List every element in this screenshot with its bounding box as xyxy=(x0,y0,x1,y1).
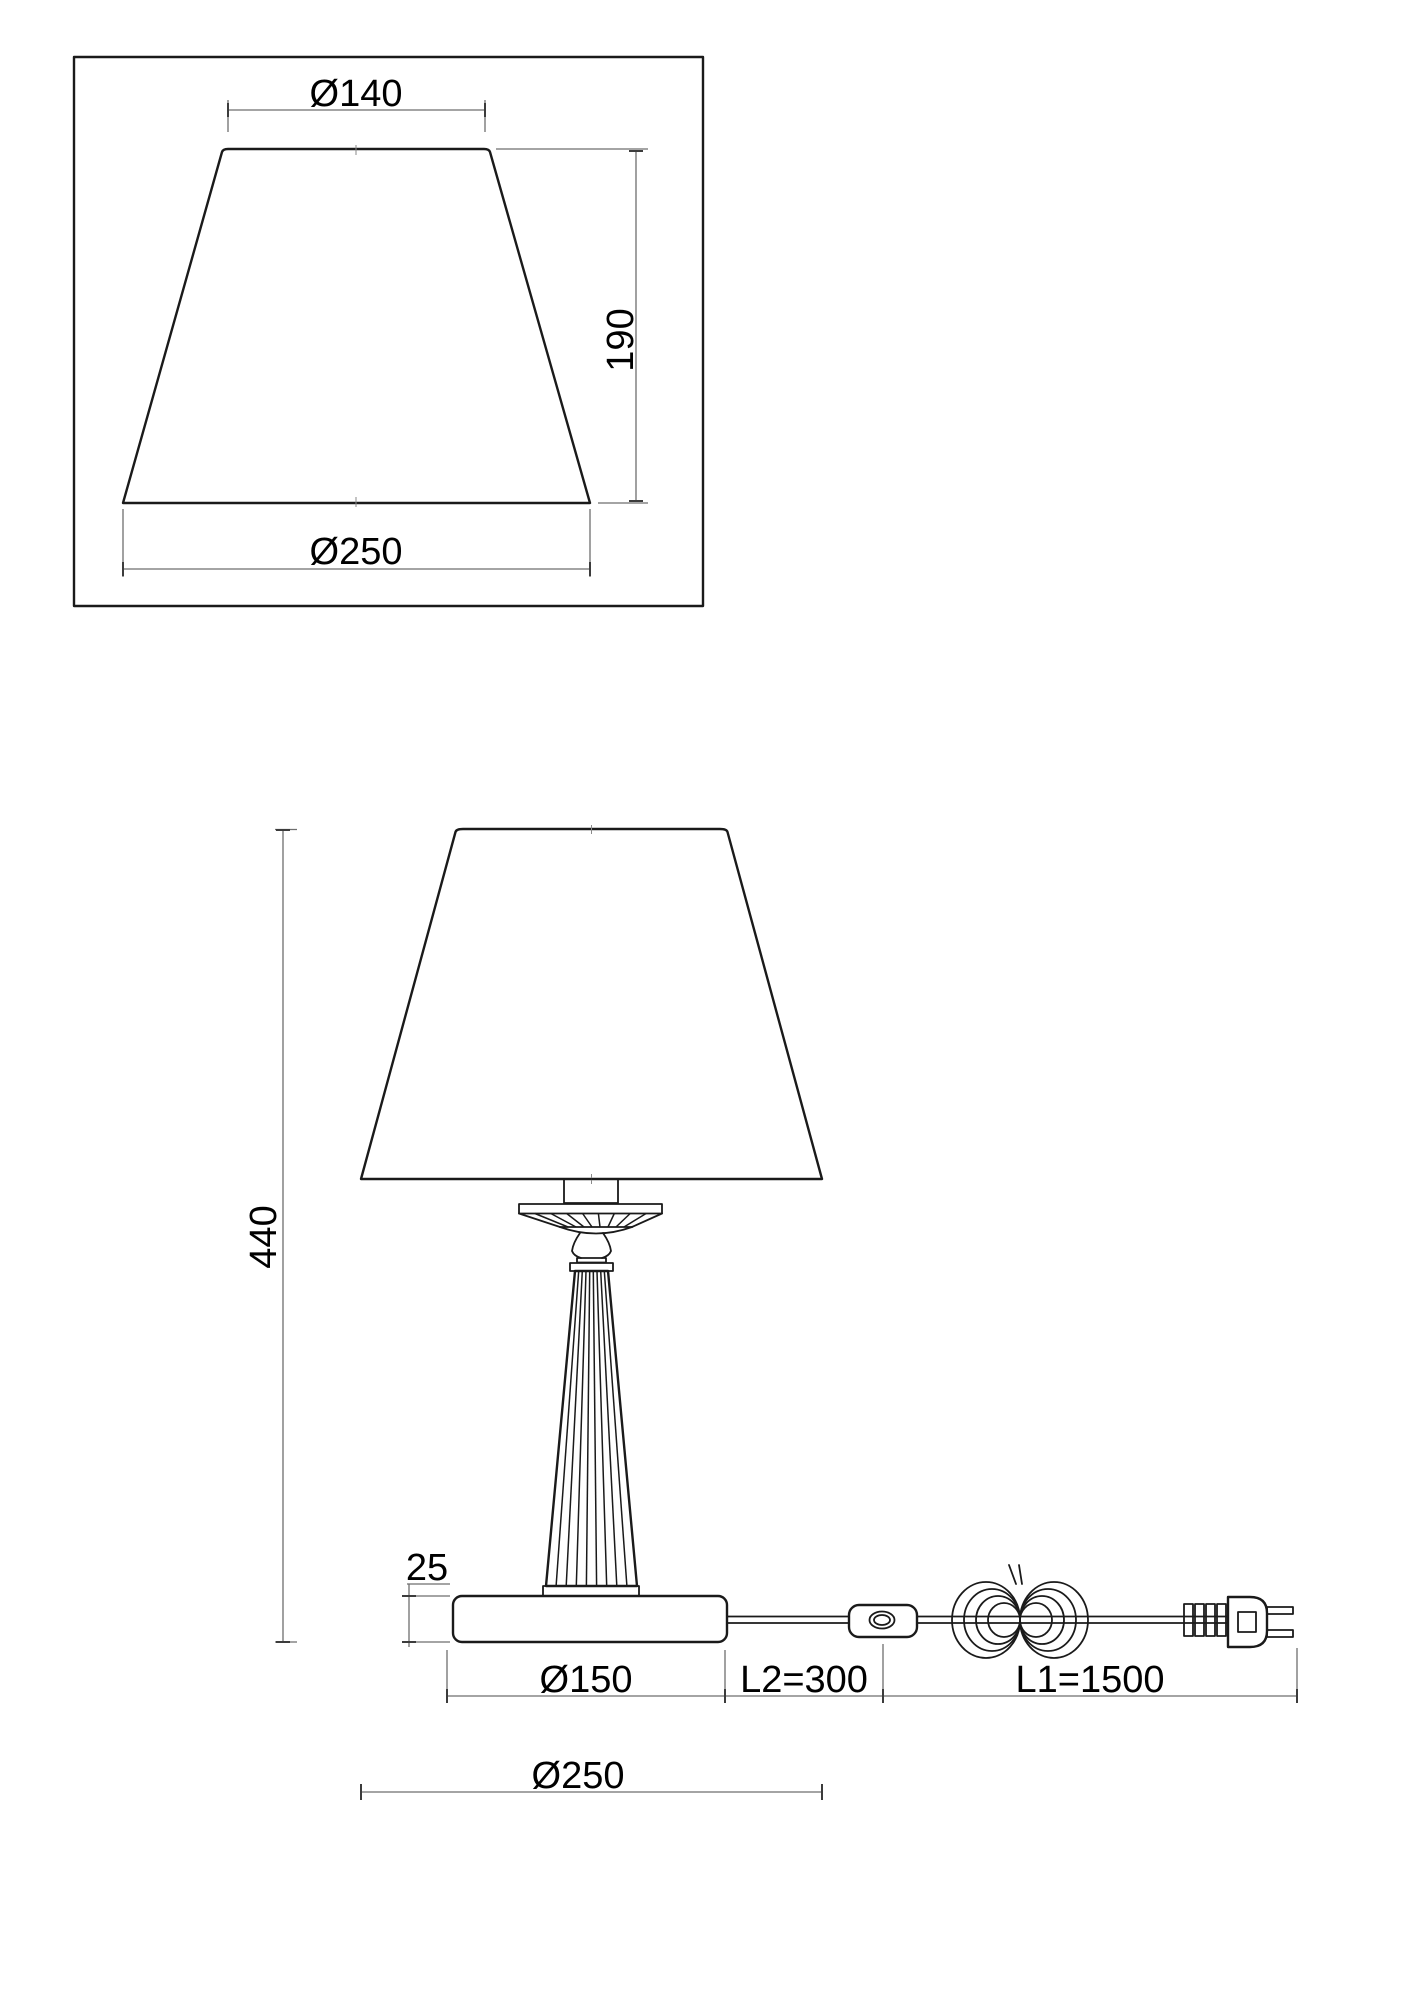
dimension-base-height: 25 xyxy=(402,1547,450,1647)
dimension-base-and-cord: Ø150 L2=300 L1=1500 xyxy=(447,1644,1297,1703)
lamp-front-view xyxy=(361,825,1293,1658)
technical-drawing-page: Ø140 190 Ø250 xyxy=(0,0,1413,2000)
total-height-label: 440 xyxy=(243,1205,285,1268)
base-diameter-label: Ø150 xyxy=(540,1659,633,1701)
dimension-bottom-diameter: Ø250 xyxy=(123,509,590,577)
front-view-dimensions: 440 25 Ø150 L2=300 L1=1500 xyxy=(243,830,1297,1801)
shade-height-label: 190 xyxy=(600,308,642,371)
base-height-label: 25 xyxy=(406,1547,448,1589)
cord-switch xyxy=(849,1605,917,1637)
plug-prong-top xyxy=(1267,1607,1293,1614)
lamp-dimension-drawing: Ø140 190 Ø250 xyxy=(0,0,1413,2000)
lamp-column xyxy=(543,1271,639,1596)
lamp-base xyxy=(453,1596,727,1642)
switch-cord-label: L2=300 xyxy=(740,1659,868,1701)
bottom-diameter-label: Ø250 xyxy=(310,531,403,573)
lamp-flange xyxy=(519,1204,662,1234)
plug-hole xyxy=(1238,1612,1256,1632)
power-cord xyxy=(727,1617,1228,1624)
plug-body xyxy=(1228,1597,1267,1647)
lamp-neck xyxy=(570,1233,613,1271)
coil-tie xyxy=(1009,1565,1016,1584)
column-collar xyxy=(543,1586,639,1596)
plug-prong-bottom xyxy=(1267,1630,1293,1637)
shade-detail-outline xyxy=(123,149,590,503)
dimension-shade-diameter: Ø250 xyxy=(361,1755,822,1800)
power-plug xyxy=(1184,1597,1293,1647)
plug-strain-relief xyxy=(1184,1604,1193,1636)
shade-diameter-label: Ø250 xyxy=(532,1755,625,1797)
top-diameter-label: Ø140 xyxy=(310,73,403,115)
shade-detail-view: Ø140 190 Ø250 xyxy=(74,57,703,606)
cord-coil xyxy=(952,1565,1088,1658)
plug-cord-label: L1=1500 xyxy=(1016,1659,1165,1701)
dimension-shade-height: 190 xyxy=(496,149,648,503)
lamp-shade xyxy=(361,829,822,1179)
dimension-top-diameter: Ø140 xyxy=(228,73,485,132)
dimension-total-height: 440 xyxy=(243,830,297,1643)
